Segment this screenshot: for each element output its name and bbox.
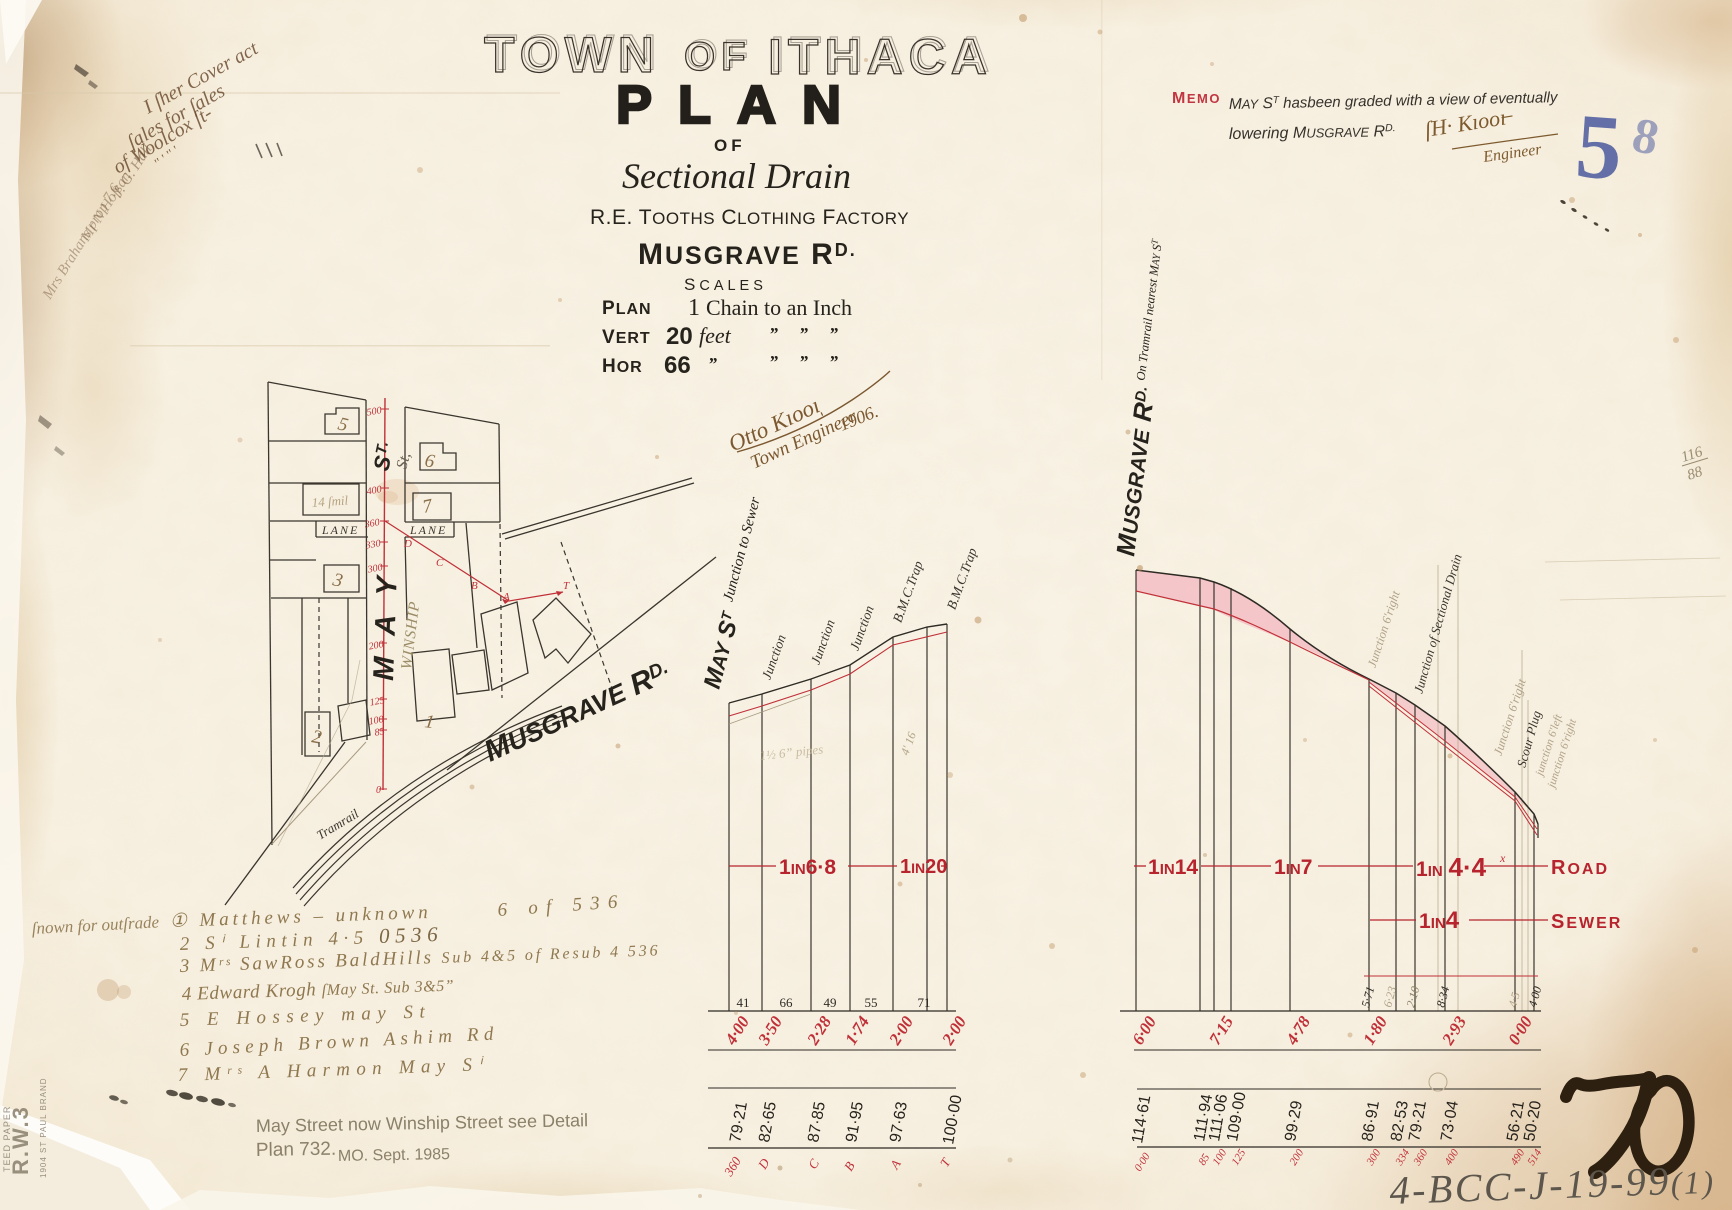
svg-text:1904 ST PAUL BRAND: 1904 ST PAUL BRAND [39,1077,48,1178]
svg-text:6: 6 [423,450,436,472]
svg-text:MEMO: MEMO [1172,90,1221,107]
svg-text:① Matthews – unknown: ① Matthews – unknown [169,902,428,932]
svg-text:5 E Hossey may St: 5 E Hossey may St [179,1001,425,1031]
svg-text:1IN14: 1IN14 [1148,856,1198,879]
svg-text:20: 20 [666,323,693,350]
svg-text:5·71: 5·71 [1358,985,1377,1009]
svg-text:114·61: 114·61 [1129,1094,1154,1145]
svg-text:91·95: 91·95 [843,1100,867,1143]
svg-text:5: 5 [1573,94,1626,199]
svg-text:ſH· Kıooı̶: ſH· Kıooı̶ [1423,103,1515,142]
svg-text:x: x [1499,851,1506,865]
svg-text:7: 7 [421,495,436,518]
svg-text:6 of 536: 6 of 536 [497,892,619,921]
svg-text:Junction to Sewer: Junction to Sewer [721,495,764,603]
svg-text:OF: OF [684,35,752,79]
svg-text:85: 85 [1196,1151,1212,1167]
svg-text:B: B [471,580,478,592]
svg-text:T: T [563,580,570,592]
svg-text:1: 1 [423,711,435,733]
svg-text:99·29: 99·29 [1282,1099,1306,1142]
svg-text:41: 41 [737,995,750,1010]
svg-text:97·63: 97·63 [887,1100,911,1143]
svg-text:MO. Sept. 1985: MO. Sept. 1985 [338,1146,450,1165]
svg-text:Junction: Junction [759,632,789,681]
svg-text:3·50: 3·50 [754,1012,787,1049]
svg-text:LANE: LANE [409,523,447,537]
svg-text:”: ” [708,354,717,374]
svg-text:SCALES: SCALES [684,275,767,294]
svg-text:7 Mʳˢ A Harmon May Sⁱ: 7 Mʳˢ A Harmon May Sⁱ [177,1054,484,1086]
svg-text:Junction 6′right: Junction 6′right [1365,589,1403,669]
svg-text:66: 66 [780,995,794,1010]
svg-text:ROAD: ROAD [1551,857,1609,879]
svg-text:MUSGRAVE RD.: MUSGRAVE RD. [1110,384,1161,557]
svg-text:PLAN: PLAN [616,75,867,135]
svg-text:87·85: 87·85 [805,1100,829,1143]
svg-text:360: 360 [363,517,381,531]
svg-text:330: 330 [364,538,382,552]
svg-text:4′ 16: 4′ 16 [898,730,919,757]
svg-text:May Street now Winship Street: May Street now Winship Street see Detail [256,1110,588,1136]
svg-text:3: 3 [330,569,345,592]
svg-text:2·00: 2·00 [938,1012,971,1049]
svg-text:TEED PAPER: TEED PAPER [2,1106,12,1172]
svg-text:66: 66 [664,352,691,379]
svg-text:125: 125 [1229,1147,1248,1168]
svg-text:HOR: HOR [602,356,643,377]
svg-text:2·00: 2·00 [885,1012,918,1049]
svg-text:ſnown for outſrade: ſnown for outſrade [31,912,160,938]
svg-text:6·00: 6·00 [1128,1012,1160,1048]
svg-text:1IN4: 1IN4 [1419,907,1460,934]
svg-text:82·65: 82·65 [756,1100,780,1143]
svg-text:200: 200 [1287,1147,1306,1168]
svg-text:79·21: 79·21 [727,1100,751,1143]
svg-text:”””: ””” [769,324,859,344]
svg-text:49: 49 [824,995,837,1010]
svg-text:1IN 4·4: 1IN 4·4 [1416,852,1487,882]
svg-text:8: 8 [1628,106,1664,166]
svg-text:1½ 6” pipes: 1½ 6” pipes [759,741,824,763]
svg-text:2·10: 2·10 [1403,985,1422,1009]
svg-text:100·00: 100·00 [940,1094,965,1146]
svg-text:OF: OF [714,136,746,155]
svg-text:Tramrail: Tramrail [314,806,362,843]
svg-text:Engineer: Engineer [1481,141,1543,166]
svg-text:feet: feet [699,323,732,348]
svg-text:Sectional Drain: Sectional Drain [622,156,851,196]
svg-text:1 Chain to an Inch: 1 Chain to an Inch [688,295,852,321]
svg-text:”””: ””” [769,352,859,372]
svg-text:2: 2 [310,726,323,748]
svg-text:4·78: 4·78 [1282,1012,1315,1049]
svg-text:4 Edward Krogh ſMay St. Su: 4 Edward Krogh ſMay St. Sub 3&5” [181,975,454,1005]
svg-text:Plan 732.: Plan 732. [256,1139,337,1161]
svg-text:Junction: Junction [847,603,877,652]
svg-text:St,: St, [393,451,414,471]
svg-text:SEWER: SEWER [1551,911,1622,933]
svg-text:Junction: Junction [808,617,838,666]
svg-text:B.M.C.Trap: B.M.C.Trap [890,559,926,625]
svg-text:71: 71 [918,995,931,1010]
svg-text:1IN7: 1IN7 [1274,856,1312,879]
svg-text:MUSGRAVE RD.: MUSGRAVE RD. [479,655,675,768]
svg-text:VERT: VERT [602,327,651,348]
svg-text:1·80: 1·80 [1359,1012,1391,1048]
svg-text:A: A [502,591,510,603]
svg-text:PLAN: PLAN [602,298,652,319]
svg-text:D: D [403,538,412,550]
svg-text:4·00: 4·00 [721,1012,754,1049]
svg-text:C: C [436,557,444,569]
svg-text:D: D [754,1155,773,1172]
svg-text:lowering MUSGRAVE RD.: lowering MUSGRAVE RD. [1229,122,1396,143]
svg-text:500: 500 [366,405,383,418]
svg-text:2·28: 2·28 [803,1012,836,1049]
svg-text:R.E. TOOTHS CLOTHING FACTORY: R.E. TOOTHS CLOTHING FACTORY [590,206,909,229]
svg-text:B.M.C.Trap: B.M.C.Trap [944,546,980,612]
svg-text:MUSGRAVE RD.: MUSGRAVE RD. [638,238,857,271]
svg-text:MAY ST: MAY ST [699,608,746,691]
svg-text:MAY ST hasbeen graded with a v: MAY ST hasbeen graded with a view of eve… [1229,89,1559,113]
svg-text:7·15: 7·15 [1205,1012,1237,1048]
svg-text:100: 100 [1210,1147,1229,1168]
svg-text:1·74: 1·74 [841,1013,873,1048]
svg-text:C: C [805,1156,822,1172]
svg-text:1IN6·8: 1IN6·8 [779,856,836,879]
svg-text:LANE: LANE [321,523,359,537]
svg-text:1IN20: 1IN20 [900,856,947,878]
svg-text:55: 55 [865,995,878,1010]
svg-text:14 ſmil: 14 ſmil [311,492,349,510]
svg-text:0: 0 [376,785,381,796]
svg-text:On Tramrail nearest MAY ST: On Tramrail nearest MAY ST [1133,238,1165,382]
svg-text:5: 5 [336,413,350,436]
svg-text:85: 85 [374,726,386,739]
